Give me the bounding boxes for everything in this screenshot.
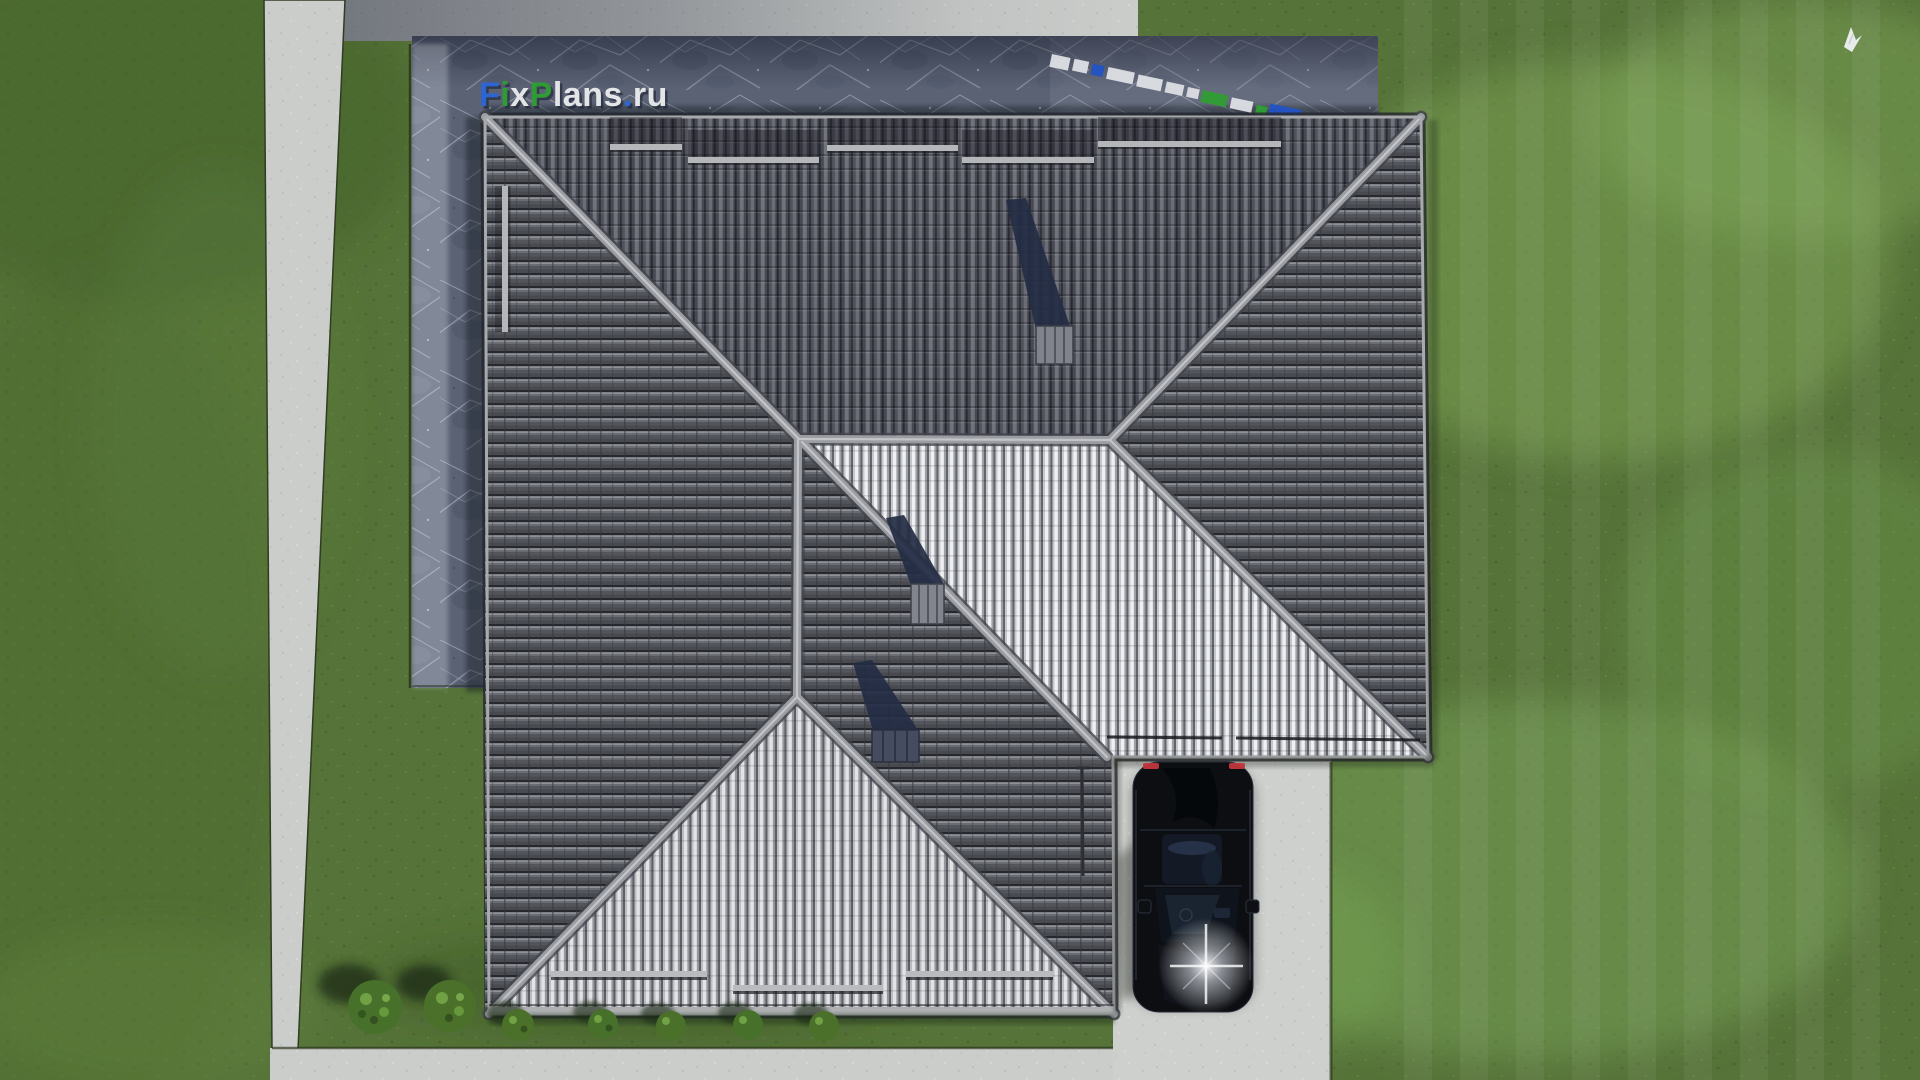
taillight-right [1229, 763, 1245, 769]
side-mirror-right [1246, 900, 1259, 913]
side-mirror-left [1138, 900, 1151, 913]
bush-large-2 [424, 980, 476, 1032]
logo-watermark: FixPlans.ru FixPlans.ru [479, 76, 670, 117]
bush-large-1 [348, 980, 402, 1034]
aerial-roof-render: FixPlans.ru FixPlans.ru [0, 0, 1920, 1080]
logo-fixplans: FixPlans.ru [479, 76, 668, 114]
scene-canvas: FixPlans.ru FixPlans.ru [0, 0, 1920, 1080]
car [1116, 762, 1259, 1014]
taillight-left [1143, 763, 1159, 769]
bottom-path [270, 1048, 1115, 1080]
mowing-stripes [1404, 0, 1880, 1080]
snow-guard-bar-west [495, 186, 511, 332]
